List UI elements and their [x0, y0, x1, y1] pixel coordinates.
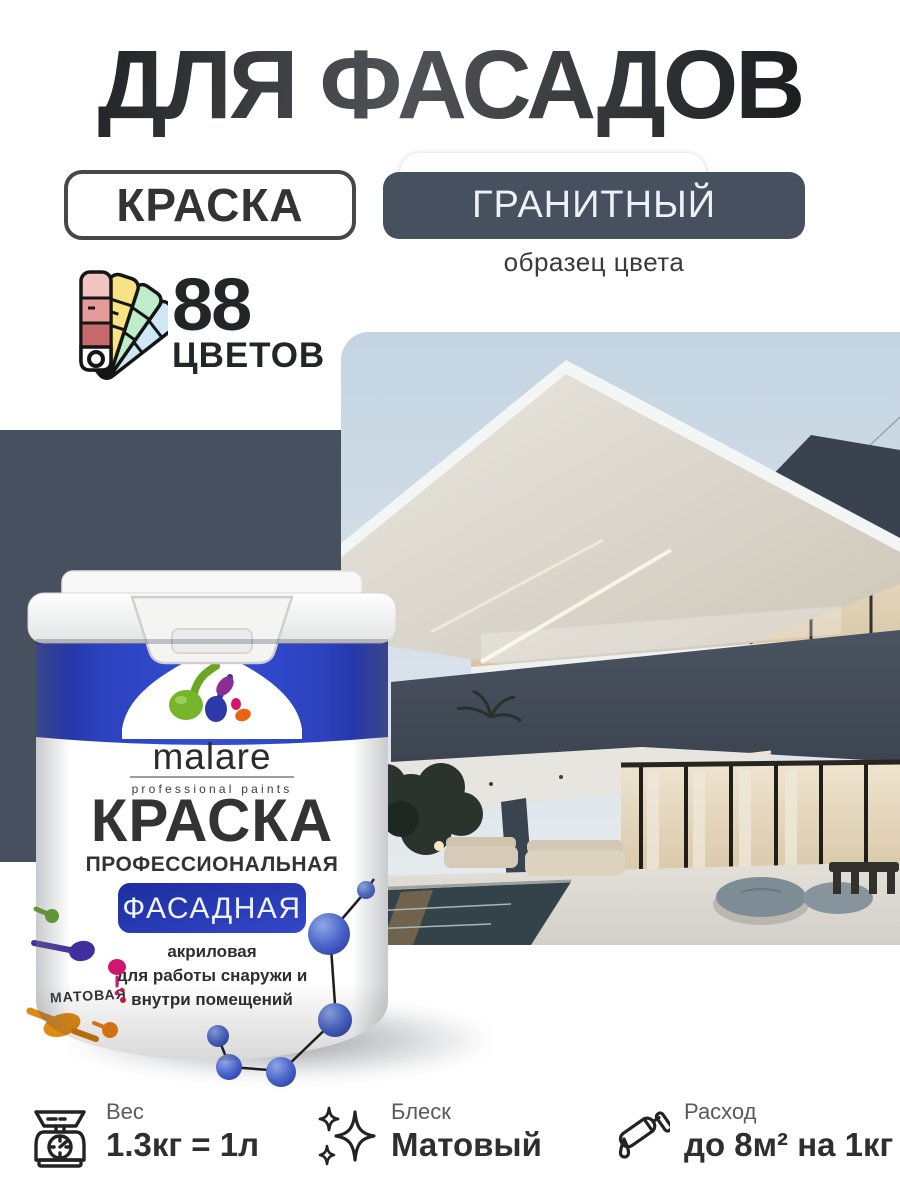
can-desc-line1: акриловая — [167, 942, 256, 961]
color-name-label: ГРАНИТНЫЙ — [472, 184, 716, 227]
spec-gloss-label: Блеск — [391, 1100, 542, 1124]
can-subtitle: ПРОФЕССИОНАЛЬНАЯ — [86, 853, 339, 876]
can-type-label: ФАСАДНАЯ — [122, 892, 301, 925]
color-fan-icon — [56, 260, 168, 391]
colors-count: 88 — [172, 262, 250, 347]
color-sample-caption: образец цвета — [383, 247, 805, 278]
color-name-badge: ГРАНИТНЫЙ — [383, 172, 805, 239]
spec-coverage-value: до 8м² на 1кг — [684, 1126, 893, 1164]
scale-icon — [28, 1106, 92, 1175]
product-card: ДЛЯ ФАСАДОВ КРАСКА ГРАНИТНЫЙ образец цве… — [0, 0, 900, 1200]
brand-name: malare — [152, 736, 271, 777]
sparkles-icon — [315, 1106, 377, 1171]
house-photo — [341, 332, 900, 945]
product-badge: КРАСКА — [64, 170, 356, 240]
can-title: КРАСКА — [91, 787, 333, 854]
page-title: ДЛЯ ФАСАДОВ — [0, 34, 900, 137]
colors-count-label: ЦВЕТОВ — [172, 336, 325, 376]
spec-weight-label: Вес — [106, 1100, 259, 1124]
paint-can: malare professional paints КРАСКА ПРОФЕС… — [22, 553, 402, 1098]
spec-coverage: Расход до 8м² на 1кг — [612, 1100, 893, 1169]
spec-coverage-label: Расход — [684, 1100, 893, 1124]
spec-weight-value: 1.3кг = 1л — [106, 1126, 259, 1164]
can-desc-line2: для работы снаружи и — [117, 966, 308, 985]
spec-weight: Вес 1.3кг = 1л — [28, 1100, 259, 1175]
product-badge-label: КРАСКА — [116, 178, 303, 232]
spec-gloss-value: Матовый — [391, 1126, 542, 1164]
spec-gloss: Блеск Матовый — [315, 1100, 542, 1171]
paint-roller-icon — [612, 1106, 670, 1169]
